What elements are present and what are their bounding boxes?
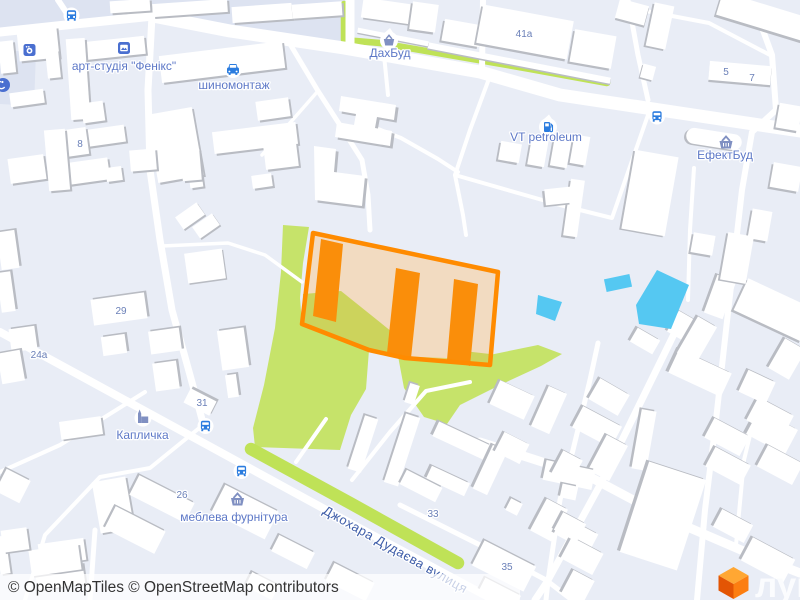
svg-text:31: 31 (196, 398, 208, 409)
svg-text:Капличка: Капличка (116, 428, 169, 442)
svg-text:33: 33 (427, 509, 439, 520)
svg-text:арт-студія "Фенікс": арт-студія "Фенікс" (72, 59, 176, 73)
svg-text:VT petroleum: VT petroleum (510, 130, 582, 144)
svg-text:24а: 24а (31, 350, 48, 361)
svg-text:шиномонтаж: шиномонтаж (198, 78, 269, 92)
svg-text:меблева фурнітура: меблева фурнітура (180, 510, 288, 524)
svg-text:ЕфектБуд: ЕфектБуд (697, 148, 753, 162)
svg-text:лун: лун (755, 566, 800, 600)
svg-text:8: 8 (77, 139, 83, 150)
svg-text:35: 35 (501, 562, 513, 573)
svg-text:29: 29 (115, 306, 127, 317)
svg-text:7: 7 (749, 73, 755, 84)
svg-text:5: 5 (723, 67, 729, 78)
svg-text:© OpenMapTiles © OpenStreetMap: © OpenMapTiles © OpenStreetMap contribut… (8, 579, 339, 596)
svg-text:ДахБуд: ДахБуд (369, 46, 410, 60)
svg-text:41a: 41a (516, 29, 533, 40)
svg-text:26: 26 (176, 490, 188, 501)
